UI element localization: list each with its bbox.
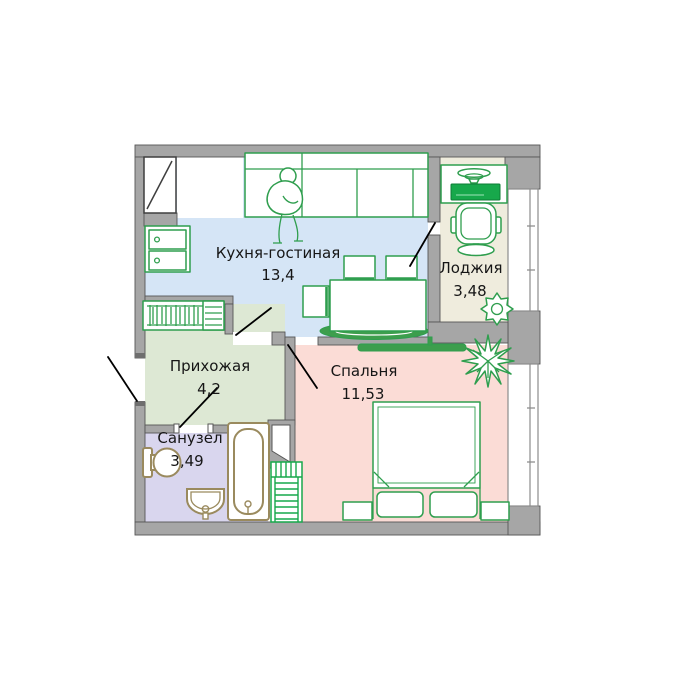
coat-rack — [143, 301, 224, 330]
pillow — [430, 492, 477, 517]
window-open-sash — [144, 157, 176, 213]
label-bedroom-area: 11,53 — [342, 385, 385, 403]
bedroom-window — [508, 364, 538, 506]
wall-bottom-right-block — [508, 506, 540, 535]
wall-window-sill-block — [144, 213, 177, 226]
kitchen-niche — [177, 157, 243, 218]
label-bedroom-name: Спальня — [331, 362, 398, 380]
entrance-jamb-bottom — [135, 401, 145, 406]
wall-kitchen-loggia-lower — [428, 235, 440, 322]
wall-loggia-bedroom — [428, 322, 508, 343]
label-loggia-name: Лоджия — [439, 259, 502, 277]
pillow — [377, 492, 423, 517]
entrance-jamb-top — [135, 353, 145, 358]
chair — [303, 286, 329, 317]
label-loggia-area: 3,48 — [453, 282, 486, 300]
office-chair — [451, 203, 501, 256]
floor-plan: Кухня-гостиная 13,4 Лоджия 3,48 Прихожая… — [0, 0, 700, 700]
bathtub — [228, 423, 269, 520]
wall-kitchen-loggia-upper — [428, 157, 440, 222]
loggia-window — [508, 189, 538, 311]
wall-mid-right-block — [508, 311, 540, 364]
entrance-door-swing — [108, 357, 137, 401]
label-hallway-name: Прихожая — [170, 357, 250, 375]
label-kitchen-area: 13,4 — [261, 266, 294, 284]
shelf-rack — [271, 462, 302, 522]
wall-stub-threshold — [272, 332, 285, 345]
nightstand-left — [343, 502, 372, 520]
kitchen-cabinet — [145, 226, 190, 272]
nightstand-right — [481, 502, 509, 520]
wall-hall-bedroom — [285, 337, 295, 425]
floor-plan-canvas: Кухня-гостиная 13,4 Лоджия 3,48 Прихожая… — [0, 0, 700, 700]
label-hallway-area: 4,2 — [197, 380, 221, 398]
threshold-kitchen — [233, 332, 272, 345]
wall-bottom — [135, 522, 540, 535]
label-bathroom-name: Санузел — [157, 429, 222, 447]
laptop — [451, 184, 500, 200]
wall-top-right-block — [505, 157, 540, 189]
label-bathroom-area: 3,49 — [170, 452, 203, 470]
wall-stub-hall — [225, 304, 233, 334]
dining-table — [330, 280, 426, 331]
label-kitchen-name: Кухня-гостиная — [216, 244, 340, 262]
desk — [441, 165, 507, 203]
